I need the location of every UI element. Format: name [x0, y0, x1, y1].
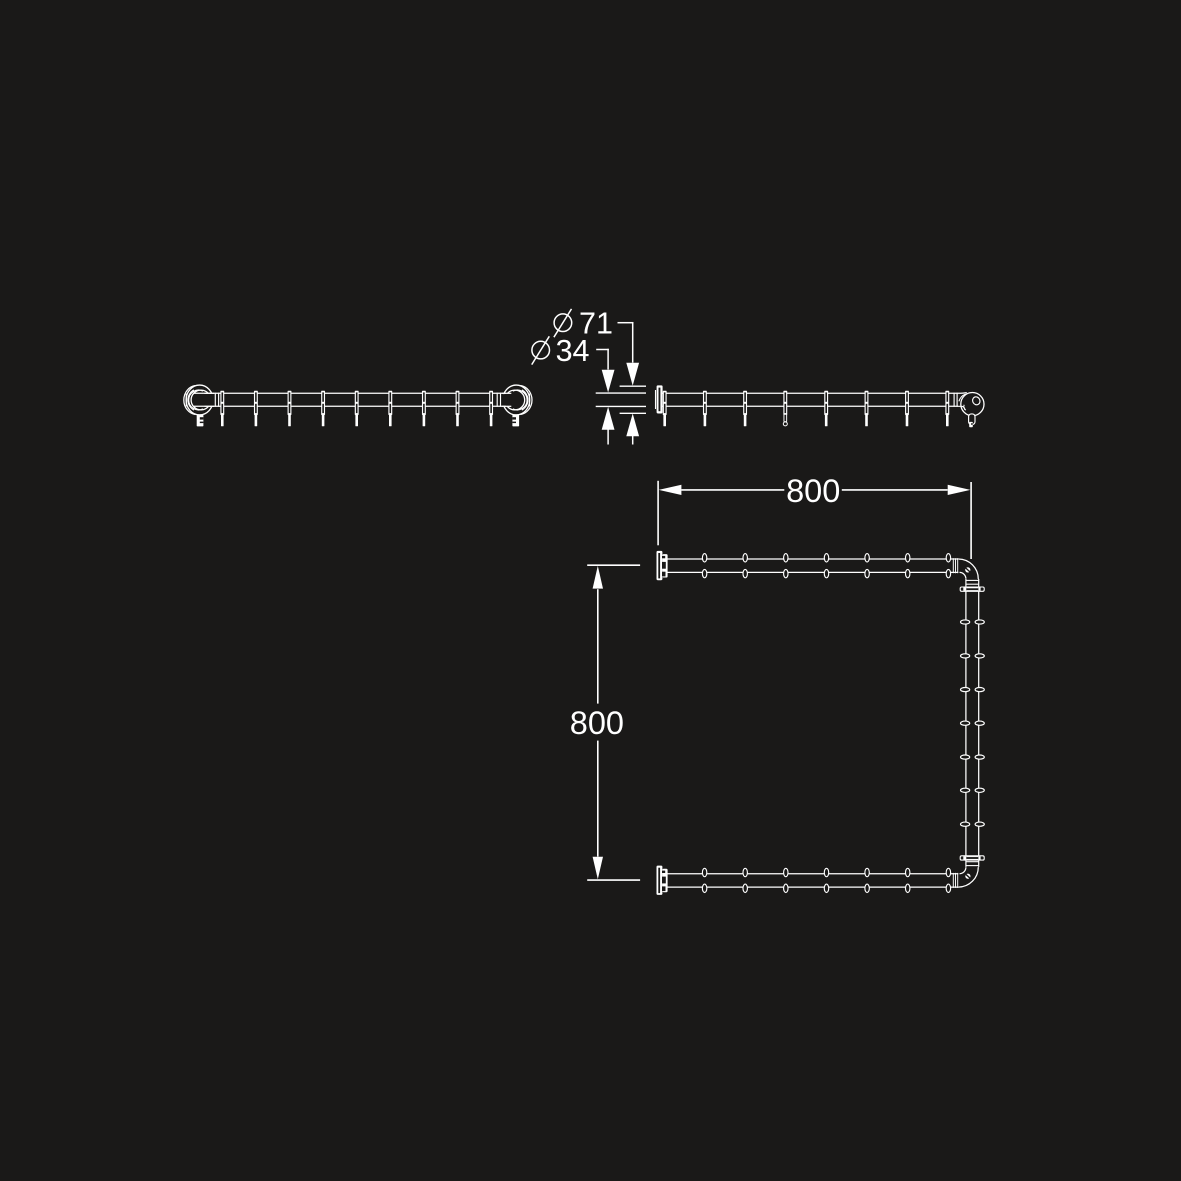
svg-text:34: 34 — [556, 334, 590, 368]
svg-text:800: 800 — [570, 705, 624, 741]
svg-text:800: 800 — [786, 473, 840, 509]
